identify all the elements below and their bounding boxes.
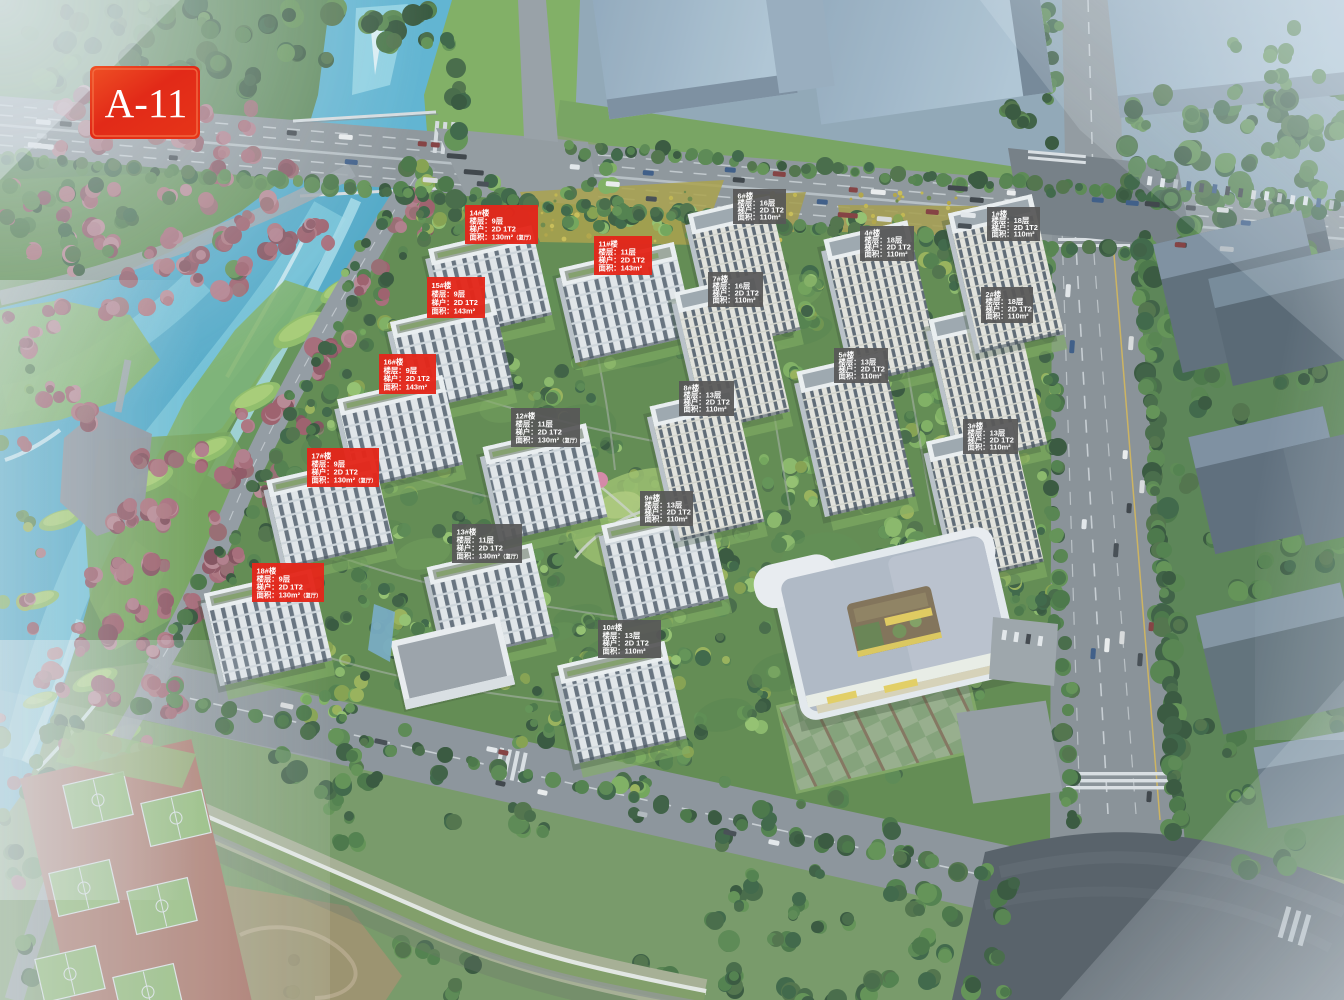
svg-text:面积：110m²: 面积：110m² xyxy=(603,647,647,656)
svg-text:面积：110m²: 面积：110m² xyxy=(713,296,757,305)
svg-text:面积：110m²: 面积：110m² xyxy=(968,443,1012,452)
svg-text:面积：110m²: 面积：110m² xyxy=(986,312,1030,321)
svg-text:面积：143m²: 面积：143m² xyxy=(599,263,643,272)
svg-text:面积：110m²: 面积：110m² xyxy=(645,515,689,524)
svg-text:面积：110m²: 面积：110m² xyxy=(865,250,909,259)
svg-text:A-11: A-11 xyxy=(105,80,188,126)
svg-text:面积：143m²: 面积：143m² xyxy=(384,382,428,391)
svg-text:面积：110m²: 面积：110m² xyxy=(738,213,782,222)
svg-text:面积：110m²: 面积：110m² xyxy=(992,230,1036,239)
svg-text:面积：143m²: 面积：143m² xyxy=(432,306,476,315)
svg-text:面积：110m²: 面积：110m² xyxy=(684,405,728,414)
svg-text:面积：110m²: 面积：110m² xyxy=(839,372,883,381)
